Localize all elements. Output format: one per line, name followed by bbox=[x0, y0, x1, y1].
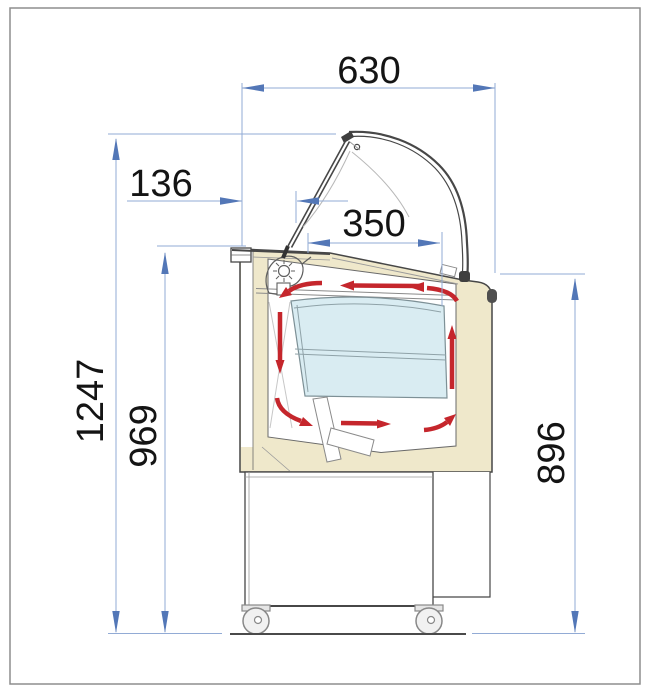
front-panel bbox=[241, 251, 253, 447]
display-depth-label: 350 bbox=[342, 203, 405, 245]
dimension-rear-height: 896 bbox=[500, 274, 585, 633]
glass-hinge bbox=[341, 131, 360, 150]
dimension-worktop-height: 969 bbox=[123, 246, 246, 633]
technical-drawing: 630 136 350 1247 bbox=[0, 0, 662, 700]
total-width-label: 630 bbox=[337, 50, 400, 92]
dimension-glass-front-offset: 136 bbox=[127, 163, 348, 223]
total-height-label: 1247 bbox=[70, 359, 112, 444]
base-rear-panel bbox=[433, 472, 490, 597]
worktop-height-label: 969 bbox=[123, 404, 165, 467]
base-front-panel bbox=[245, 472, 433, 606]
diagram-canvas: 630 136 350 1247 bbox=[0, 0, 662, 700]
glass-end-cap bbox=[459, 271, 470, 282]
glass-front-offset-label: 136 bbox=[129, 163, 192, 205]
caster-wheel-icon bbox=[242, 605, 270, 634]
display-tub bbox=[291, 297, 447, 398]
lamp-icon bbox=[273, 260, 295, 282]
rear-height-label: 896 bbox=[531, 421, 573, 484]
rear-bumper bbox=[487, 289, 497, 303]
base-cabinet bbox=[243, 472, 490, 606]
glass-rear-clip bbox=[440, 264, 457, 276]
caster-wheel-icon bbox=[415, 605, 443, 634]
